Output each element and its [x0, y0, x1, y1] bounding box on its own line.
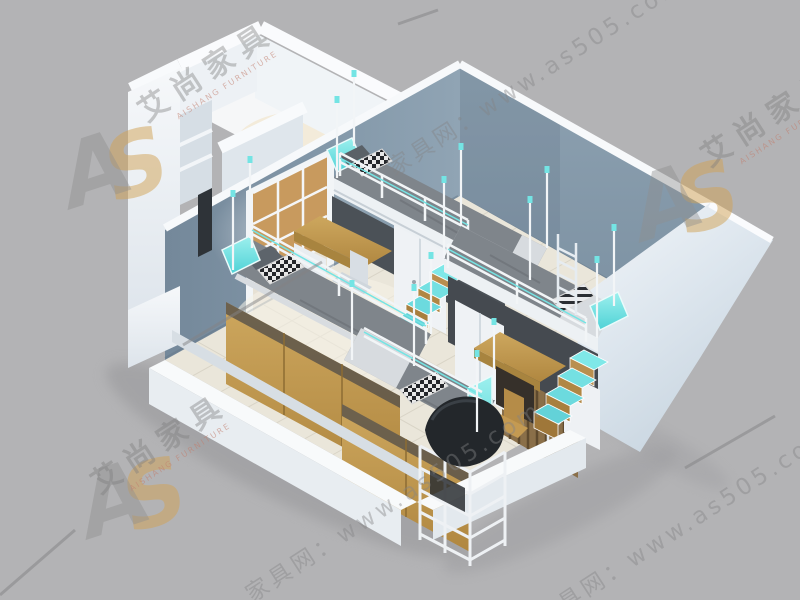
isometric-room-cutaway	[0, 0, 800, 600]
dorm-room-render: S A S A S A 艾尚家具 AISHANG FURNITURE 艾尚家具 …	[0, 0, 800, 600]
wall-tv-panel	[198, 188, 212, 257]
